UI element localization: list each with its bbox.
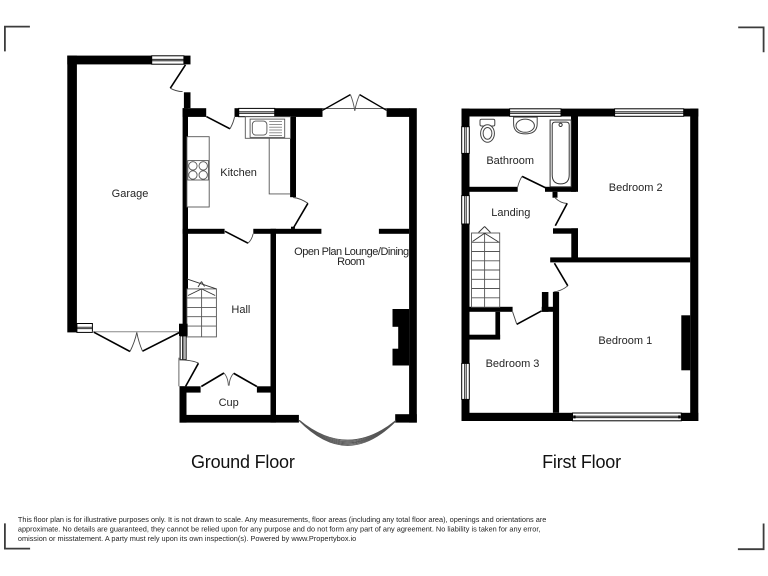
- svg-text:Bedroom 2: Bedroom 2: [609, 182, 663, 194]
- svg-text:First Floor: First Floor: [542, 452, 621, 472]
- svg-text:Garage: Garage: [112, 188, 149, 200]
- svg-text:This floor plan is for illustr: This floor plan is for illustrative purp…: [18, 515, 546, 524]
- svg-text:approximate. No details are gu: approximate. No details are guaranteed, …: [18, 524, 541, 533]
- svg-text:Bathroom: Bathroom: [486, 155, 534, 167]
- svg-text:omission or misstatement. A pa: omission or misstatement. A party must r…: [18, 534, 356, 543]
- svg-text:Bedroom 1: Bedroom 1: [598, 335, 652, 347]
- svg-text:Kitchen: Kitchen: [220, 167, 257, 179]
- svg-text:Cup: Cup: [219, 397, 239, 409]
- svg-text:Room: Room: [337, 256, 365, 268]
- svg-text:Bedroom 3: Bedroom 3: [486, 358, 540, 370]
- svg-text:Hall: Hall: [231, 304, 250, 316]
- svg-text:Ground Floor: Ground Floor: [191, 452, 295, 472]
- svg-text:Landing: Landing: [491, 207, 530, 219]
